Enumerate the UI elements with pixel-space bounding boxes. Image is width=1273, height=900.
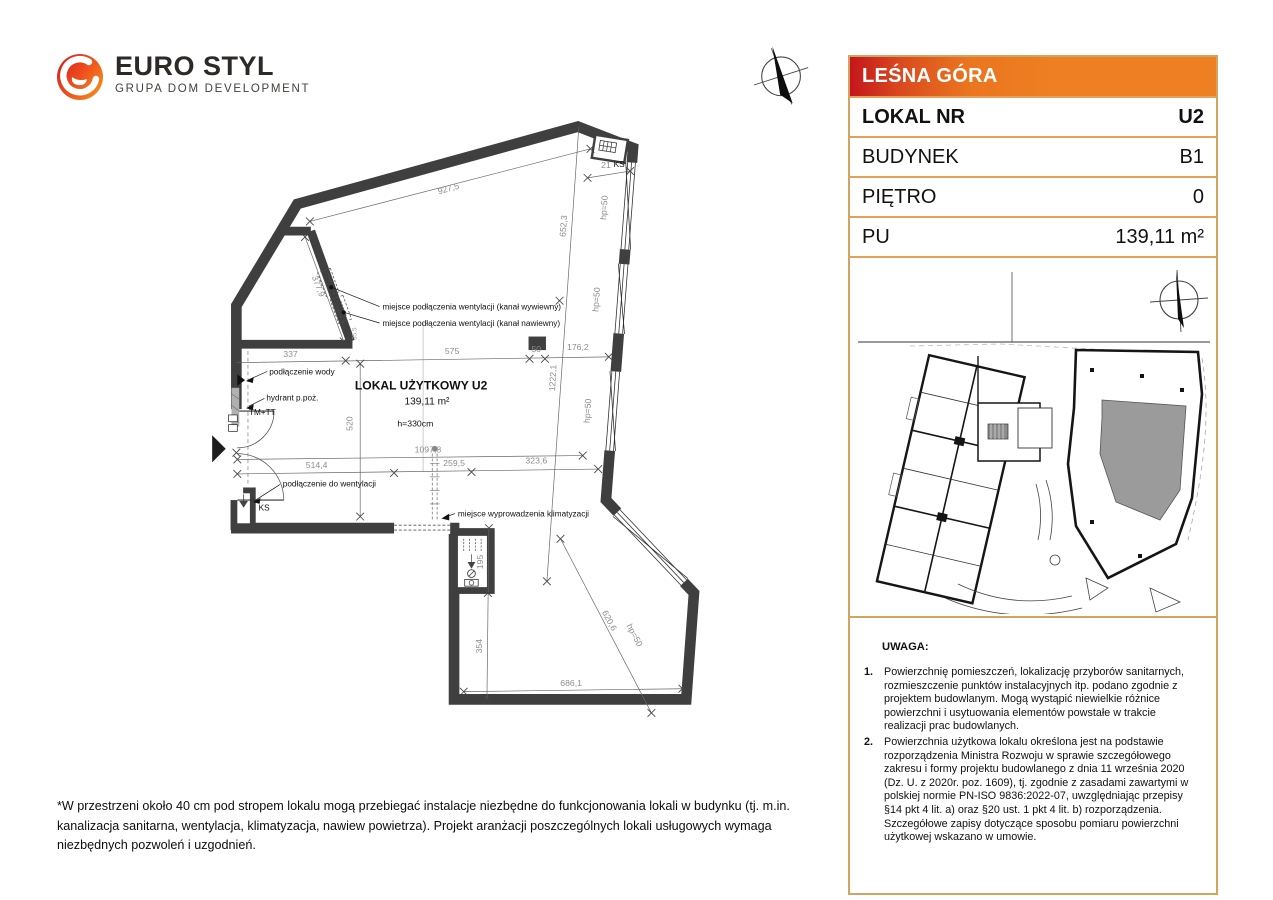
row-pietro: PIĘTRO 0 (850, 178, 1216, 218)
dim-left-top: 337 (283, 349, 298, 359)
ac-outlet-label: miejsce wyprowadzenia klimatyzacji (458, 510, 589, 519)
unit-area: 139,11 m² (405, 396, 451, 407)
eurostyl-logo-icon (55, 50, 105, 104)
row-value: 0 (1193, 186, 1204, 209)
dim-mid-bottom: 259,5 (443, 458, 465, 468)
dim-right-upper: 652,3 (558, 215, 570, 238)
row-label: BUDYNEK (862, 146, 959, 169)
row-label: LOKAL NR (862, 106, 965, 129)
vent-exhaust-label: miejsce podłączenia wentylacji (kanał wy… (382, 302, 561, 311)
floor-plan: KS KS (190, 25, 840, 770)
dim-left-bottom: 514,4 (306, 460, 328, 470)
site-plan-section (850, 258, 1216, 618)
site-plan (850, 258, 1216, 614)
note-item: 2. Powierzchnia użytkowa lokalu określon… (864, 736, 1204, 845)
row-label: PIĘTRO (862, 186, 936, 209)
hydrant-label: hydrant p.poż. (266, 393, 318, 402)
dim-mid-top: 575 (445, 346, 460, 356)
water-label: podłączenie wody (269, 367, 335, 376)
notes-heading: UWAGA: (882, 640, 1204, 654)
vent-grille (394, 522, 450, 534)
dim-hp50: hp=50 (598, 195, 610, 220)
unit-height: h=330cm (397, 419, 433, 429)
dim-hp50: hp=50 (590, 287, 602, 312)
row-value: B1 (1180, 146, 1204, 169)
north-arrow-icon (1150, 270, 1208, 332)
dim-bottom: 686,1 (560, 678, 582, 688)
dim-right-bottom: 323,6 (525, 455, 547, 465)
tm-box-icon (229, 415, 238, 422)
building-b1-outline (869, 353, 1024, 603)
tm-tt-label: TM+TT (249, 408, 276, 417)
note-number: 2. (864, 736, 884, 845)
dim-right-lower: 1222,1 (547, 364, 558, 391)
project-name-header: LEŚNA GÓRA (850, 57, 1216, 98)
dim-right-top: 176,2 (567, 342, 589, 352)
note-text: Powierzchnię pomieszczeń, lokalizację pr… (884, 666, 1204, 734)
footnote: *W przestrzeni około 40 cm pod stropem l… (57, 797, 832, 856)
notes-section: UWAGA: 1. Powierzchnię pomieszczeń, loka… (850, 618, 1216, 845)
row-budynek: BUDYNEK B1 (850, 138, 1216, 178)
ks-label: KS (259, 504, 270, 513)
dim-small: 35,5 (351, 327, 358, 340)
dim-interior-width: 1097,8 (415, 445, 442, 455)
note-number: 1. (864, 666, 884, 734)
row-pu: PU 139,11 m² (850, 218, 1216, 258)
building-with-unit-u2 (1068, 350, 1202, 578)
row-label: PU (862, 226, 890, 249)
note-text: Powierzchnia użytkowa lokalu określona j… (884, 736, 1204, 845)
dim-hp50: hp=50 (582, 398, 594, 423)
dim-shaft-height: 195 (475, 555, 485, 570)
vent-connect-label: podłączenie do wentylacji (283, 480, 376, 489)
tt-box-icon (229, 425, 238, 432)
info-panel: LEŚNA GÓRA LOKAL NR U2 BUDYNEK B1 PIĘTRO… (848, 55, 1218, 895)
entrance-arrow-icon (212, 435, 226, 462)
north-arrow-icon (754, 46, 808, 104)
row-value: U2 (1178, 106, 1204, 129)
dim-ks-offset: 21 (601, 160, 611, 170)
note-item: 1. Powierzchnię pomieszczeń, lokalizację… (864, 666, 1204, 734)
dim-left-height: 520 (344, 416, 354, 431)
ks-label: KS (614, 160, 625, 169)
vent-supply-label: miejsce podłączenia wentylacji (kanał na… (382, 319, 560, 328)
row-lokal-nr: LOKAL NR U2 (850, 98, 1216, 138)
row-value: 139,11 m² (1115, 226, 1204, 249)
dim-lower-height: 354 (474, 639, 484, 654)
dim-pillar: 50 (531, 344, 541, 354)
floorplan-sheet: { "logo": { "brand_line1": "EURO STYL", … (0, 0, 1273, 900)
unit-title: LOKAL UŻYTKOWY U2 (355, 378, 488, 393)
